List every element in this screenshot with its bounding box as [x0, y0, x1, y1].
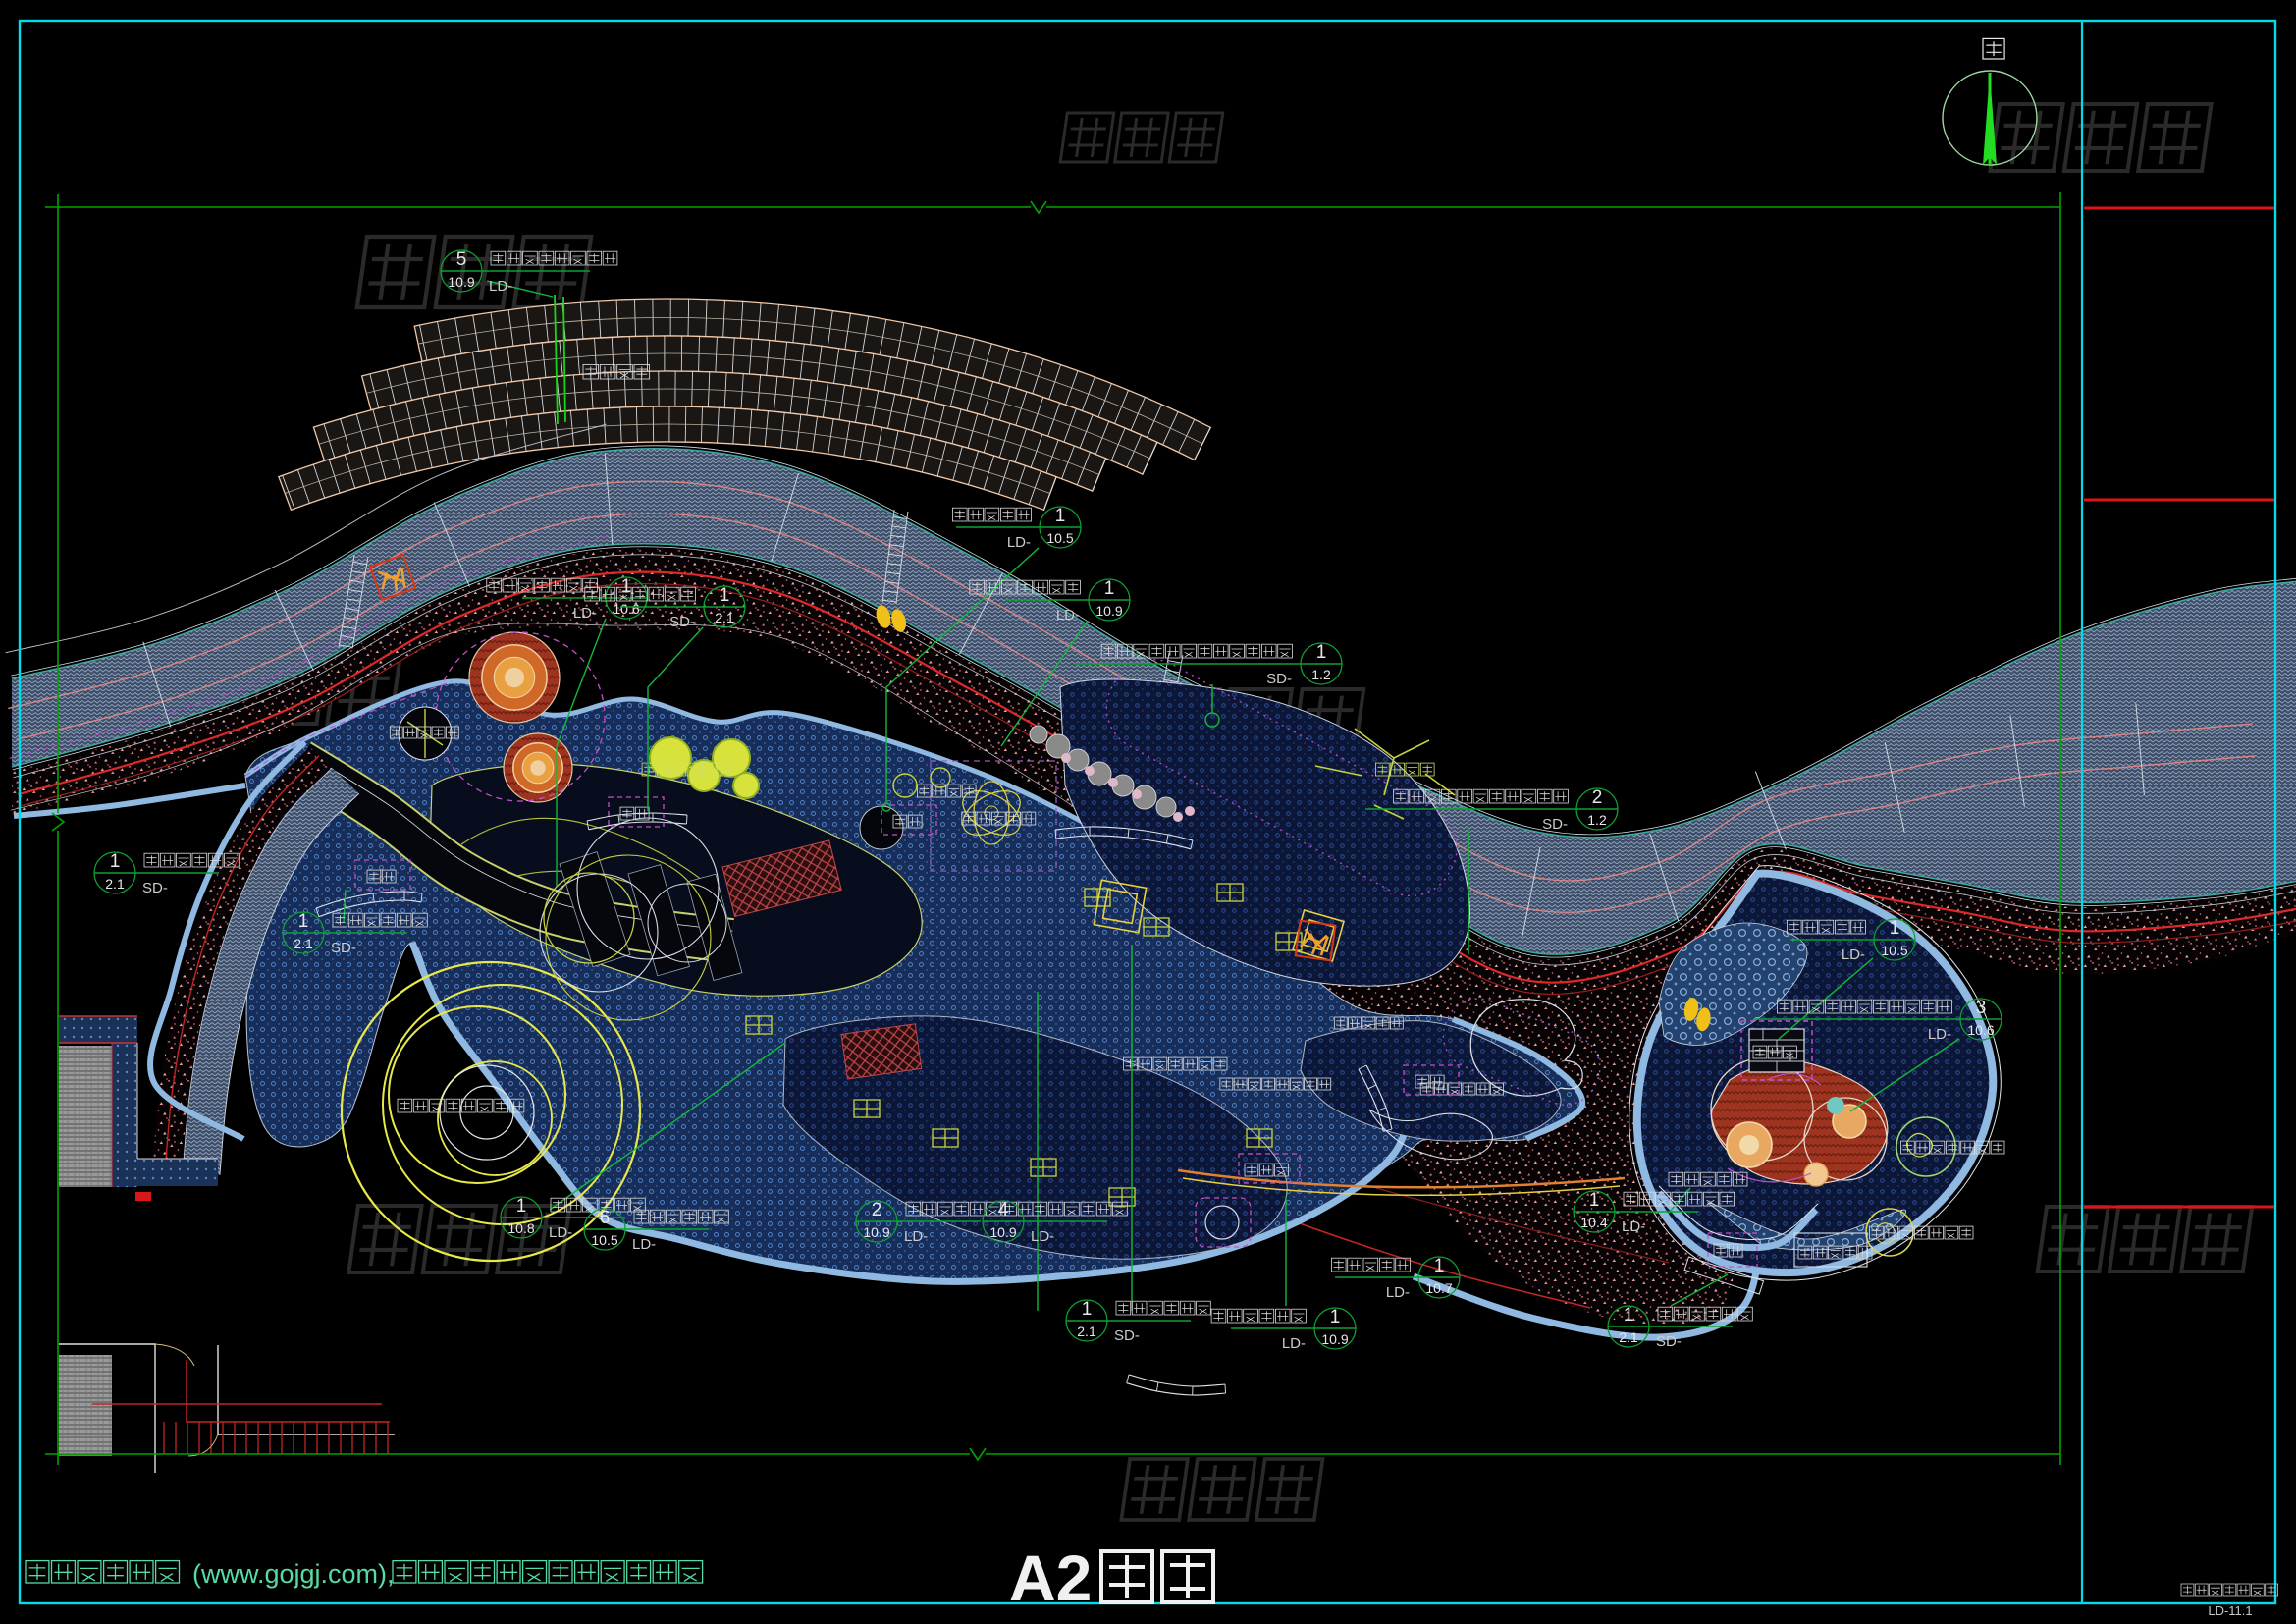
svg-text:1: 1 [1104, 578, 1115, 599]
svg-text:10.5: 10.5 [591, 1232, 617, 1248]
svg-text:1: 1 [1890, 918, 1900, 939]
svg-text:4: 4 [998, 1200, 1009, 1220]
svg-text:10.9: 10.9 [448, 274, 474, 290]
svg-text:1: 1 [1330, 1307, 1341, 1327]
svg-text:2.1: 2.1 [1619, 1329, 1638, 1345]
svg-text:1.2: 1.2 [1587, 812, 1607, 828]
svg-text:10.9: 10.9 [989, 1224, 1016, 1240]
svg-text:1.2: 1.2 [1311, 667, 1331, 682]
svg-text:SD-: SD- [669, 614, 695, 630]
svg-text:SD-: SD- [1656, 1333, 1682, 1350]
svg-text:2: 2 [872, 1200, 882, 1220]
svg-text:LD-: LD- [489, 278, 512, 295]
svg-text:10.9: 10.9 [863, 1224, 889, 1240]
svg-text:10.4: 10.4 [1580, 1215, 1607, 1230]
svg-text:2.1: 2.1 [1077, 1324, 1096, 1339]
svg-text:1: 1 [1589, 1190, 1600, 1211]
svg-text:1: 1 [621, 576, 632, 597]
svg-text:2.1: 2.1 [294, 936, 313, 951]
svg-text:SD-: SD- [1542, 816, 1568, 833]
svg-text:6: 6 [600, 1208, 611, 1228]
svg-text:LD-: LD- [1386, 1284, 1410, 1301]
svg-text:SD-: SD- [1266, 671, 1292, 687]
svg-text:LD-: LD- [1622, 1218, 1645, 1235]
svg-text:2.1: 2.1 [715, 610, 734, 625]
svg-text:2: 2 [1592, 787, 1603, 808]
svg-text:1: 1 [110, 851, 121, 872]
svg-text:LD-: LD- [549, 1224, 572, 1241]
svg-text:1: 1 [1624, 1305, 1634, 1326]
svg-text:10.6: 10.6 [1967, 1022, 1994, 1038]
svg-text:1: 1 [1434, 1256, 1445, 1276]
svg-text:SD-: SD- [331, 940, 356, 956]
svg-text:3: 3 [1976, 998, 1987, 1018]
svg-text:LD-11.1: LD-11.1 [2208, 1603, 2252, 1618]
svg-text:1: 1 [516, 1196, 527, 1217]
svg-text:1: 1 [1082, 1299, 1093, 1320]
svg-text:LD-: LD- [1842, 947, 1865, 963]
svg-text:LD-: LD- [1031, 1228, 1054, 1245]
svg-text:A2: A2 [1009, 1542, 1092, 1614]
svg-text:2.1: 2.1 [105, 876, 125, 892]
svg-text:10.9: 10.9 [1095, 603, 1122, 619]
svg-text:SD-: SD- [142, 880, 168, 896]
svg-text:LD-: LD- [573, 605, 597, 622]
svg-text:LD-: LD- [632, 1236, 656, 1253]
svg-text:1: 1 [298, 911, 309, 932]
svg-text:1: 1 [720, 585, 730, 606]
svg-text:LD-: LD- [1056, 607, 1080, 623]
svg-text:1: 1 [1055, 506, 1066, 526]
svg-text:1: 1 [1316, 642, 1327, 663]
svg-text:10.7: 10.7 [1425, 1280, 1452, 1296]
svg-text:10.5: 10.5 [1881, 943, 1907, 958]
svg-text:5: 5 [456, 249, 467, 270]
svg-text:LD-: LD- [1928, 1026, 1951, 1043]
svg-text:10.9: 10.9 [1321, 1331, 1348, 1347]
svg-text:SD-: SD- [1114, 1327, 1140, 1344]
svg-text:LD-: LD- [904, 1228, 928, 1245]
svg-text:10.5: 10.5 [1046, 530, 1073, 546]
svg-text:10.6: 10.6 [613, 601, 639, 617]
svg-text:LD-: LD- [1007, 534, 1031, 551]
svg-text:(www.gojgj.com),: (www.gojgj.com), [192, 1559, 395, 1589]
svg-text:10.8: 10.8 [507, 1220, 534, 1236]
svg-text:LD-: LD- [1282, 1335, 1306, 1352]
